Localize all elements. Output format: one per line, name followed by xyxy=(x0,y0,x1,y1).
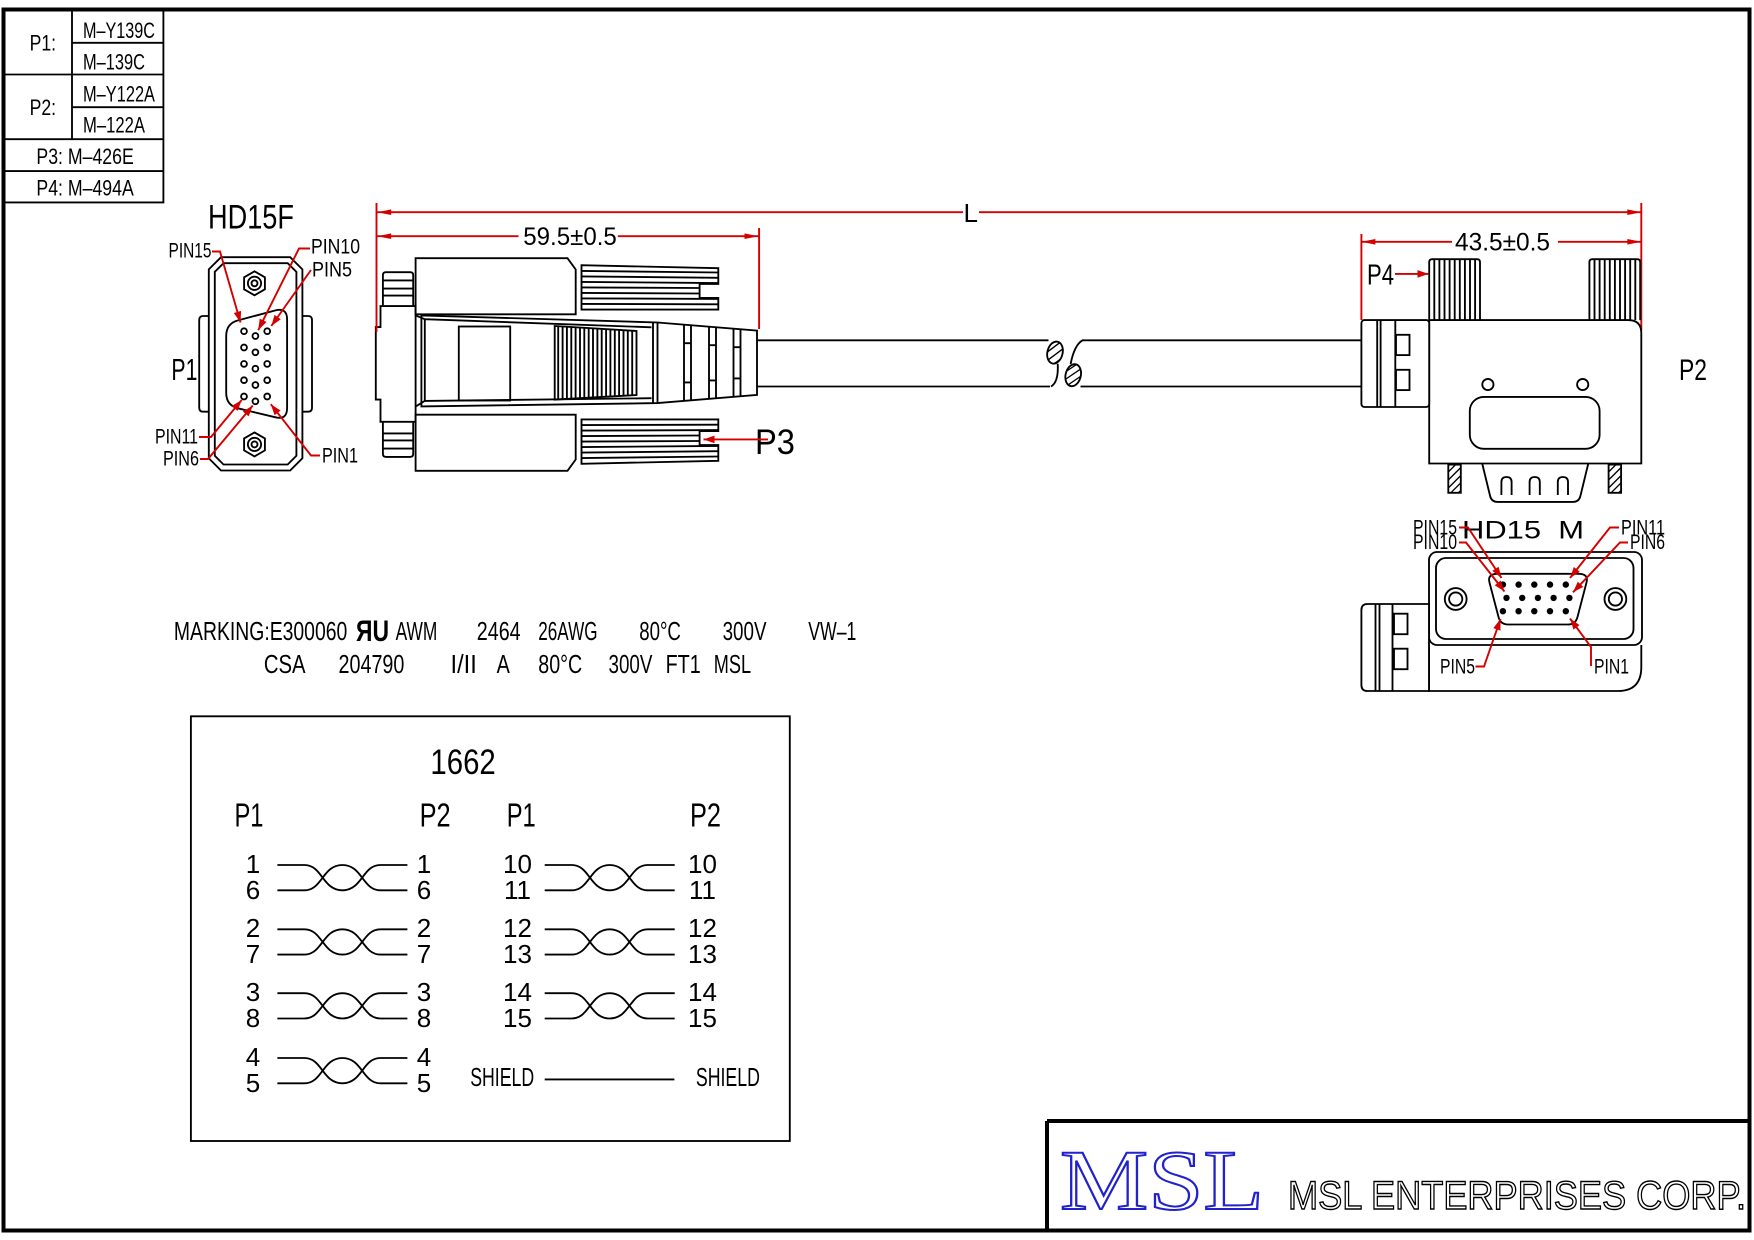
svg-text:300V: 300V xyxy=(609,649,653,679)
svg-text:P1: P1 xyxy=(507,797,536,834)
svg-text:59.5±0.5: 59.5±0.5 xyxy=(523,223,617,251)
svg-text:15: 15 xyxy=(688,1003,717,1033)
svg-text:7: 7 xyxy=(417,939,431,969)
svg-text:43.5±0.5: 43.5±0.5 xyxy=(1455,228,1550,256)
svg-text:7: 7 xyxy=(246,939,260,969)
svg-text:P3: M–426E: P3: M–426E xyxy=(36,144,133,169)
svg-text:PIN11: PIN11 xyxy=(155,426,198,449)
svg-text:HD15 M: HD15 M xyxy=(1462,517,1584,545)
svg-text:P4: M–494A: P4: M–494A xyxy=(36,175,134,200)
svg-text:PIN5: PIN5 xyxy=(1440,656,1475,679)
svg-text:5: 5 xyxy=(417,1068,431,1098)
svg-text:P1: P1 xyxy=(171,352,197,387)
svg-text:13: 13 xyxy=(503,939,532,969)
svg-text:PIN5: PIN5 xyxy=(312,259,352,282)
svg-text:13: 13 xyxy=(688,939,717,969)
svg-text:M–Y139C: M–Y139C xyxy=(83,18,155,43)
svg-text:AWM: AWM xyxy=(396,616,438,646)
svg-text:PIN1: PIN1 xyxy=(1594,656,1629,679)
svg-text:26AWG: 26AWG xyxy=(538,616,597,646)
svg-text:P2:: P2: xyxy=(30,95,56,120)
svg-text:204790: 204790 xyxy=(339,649,405,679)
svg-text:8: 8 xyxy=(417,1003,431,1033)
svg-text:PIN15: PIN15 xyxy=(169,240,212,263)
svg-text:ЯU: ЯU xyxy=(356,615,389,648)
svg-text:MARKING:E300060: MARKING:E300060 xyxy=(174,616,347,646)
svg-text:P3: P3 xyxy=(755,423,795,462)
svg-text:MSL: MSL xyxy=(1060,1132,1264,1228)
svg-text:PIN10: PIN10 xyxy=(311,236,360,259)
svg-text:CSA: CSA xyxy=(264,649,306,679)
svg-text:FT1: FT1 xyxy=(666,649,701,679)
svg-text:HD15F: HD15F xyxy=(208,199,294,237)
svg-text:P2: P2 xyxy=(1679,354,1707,387)
svg-text:SHIELD: SHIELD xyxy=(470,1062,534,1092)
svg-text:MSL ENTERPRISES CORP.: MSL ENTERPRISES CORP. xyxy=(1288,1174,1746,1218)
svg-text:P4: P4 xyxy=(1367,260,1394,292)
svg-text:PIN6: PIN6 xyxy=(163,448,199,471)
svg-text:PIN6: PIN6 xyxy=(1630,531,1665,554)
svg-text:A: A xyxy=(497,649,511,679)
svg-text:8: 8 xyxy=(246,1003,260,1033)
svg-text:300V: 300V xyxy=(723,616,767,646)
svg-text:P2: P2 xyxy=(690,797,721,834)
svg-text:80°C: 80°C xyxy=(639,616,681,646)
svg-text:2464: 2464 xyxy=(477,616,521,646)
svg-text:6: 6 xyxy=(246,875,260,905)
svg-text:11: 11 xyxy=(504,875,531,905)
svg-text:11: 11 xyxy=(689,875,716,905)
svg-text:M–122A: M–122A xyxy=(83,113,145,138)
svg-text:PIN1: PIN1 xyxy=(322,445,358,468)
svg-text:SHIELD: SHIELD xyxy=(696,1062,760,1092)
svg-text:P1: P1 xyxy=(235,797,264,834)
svg-text:I/II: I/II xyxy=(451,649,477,679)
svg-text:6: 6 xyxy=(417,875,431,905)
svg-text:PIN10: PIN10 xyxy=(1413,531,1457,554)
svg-text:5: 5 xyxy=(246,1068,260,1098)
svg-text:80°C: 80°C xyxy=(538,649,582,679)
svg-text:M–Y122A: M–Y122A xyxy=(83,81,155,106)
svg-text:P1:: P1: xyxy=(30,31,56,56)
svg-text:P2: P2 xyxy=(420,797,451,834)
svg-text:1662: 1662 xyxy=(430,743,495,782)
svg-text:VW–1: VW–1 xyxy=(808,616,856,646)
svg-text:15: 15 xyxy=(503,1003,532,1033)
svg-text:L: L xyxy=(964,198,978,228)
svg-text:MSL: MSL xyxy=(714,649,751,679)
svg-text:M–139C: M–139C xyxy=(83,49,145,74)
